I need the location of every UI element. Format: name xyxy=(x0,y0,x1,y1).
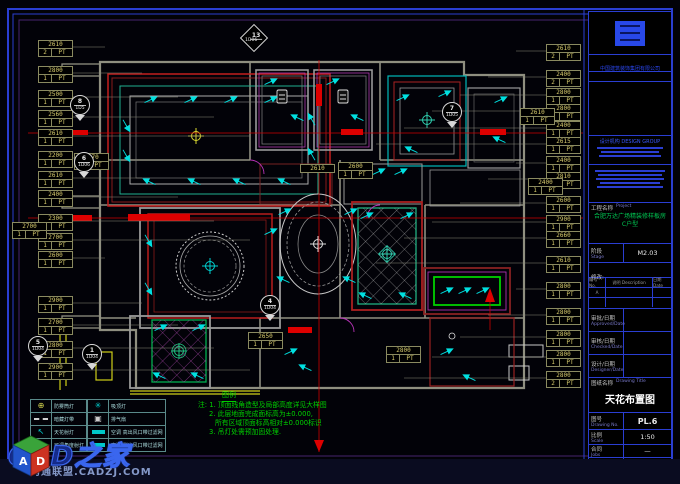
height-value: 2700 xyxy=(39,319,72,327)
height-value: 2610 xyxy=(547,45,580,53)
spotlight-icon xyxy=(298,362,312,372)
height-value: 2660 xyxy=(547,232,580,240)
finish-code: 1PT xyxy=(39,372,72,379)
ceiling-height-tag: 28001PT xyxy=(546,308,581,325)
ceiling-height-tag: 28001PT xyxy=(546,350,581,367)
finish-code: 1PT xyxy=(547,317,580,324)
ceiling-height-tag: 27001PT xyxy=(12,222,47,239)
height-value: 2400 xyxy=(547,157,580,165)
ceiling-height-tag: 26001PT xyxy=(38,251,73,268)
finish-code: 2PT xyxy=(547,53,580,60)
exhaust-icon: ▣ xyxy=(88,413,109,425)
height-value: 2200 xyxy=(39,152,72,160)
scale-value: 1:50 xyxy=(624,430,671,444)
title-block-spacer xyxy=(589,82,671,136)
height-value: 2900 xyxy=(39,297,72,305)
ceiling-height-tag: 26101PT xyxy=(38,129,73,146)
legend-label: 排气扇 xyxy=(109,416,128,423)
spotlight-icon xyxy=(404,144,418,154)
height-value: 2400 xyxy=(547,71,580,79)
finish-code: 1PT xyxy=(39,75,72,82)
elevation-marker: 61D06 xyxy=(74,152,94,178)
note-line: 所有区域顶面标高相对±0.000标识 xyxy=(198,419,327,428)
finish-code: 1PT xyxy=(529,187,562,194)
height-value: 2615 xyxy=(547,138,580,146)
note-line: 2. 此层地面完成面标高为±0.000, xyxy=(198,410,327,419)
finish-code: 1PT xyxy=(547,339,580,346)
ceiling-height-tag: 26101PT xyxy=(38,171,73,188)
ceiling-height-tag: 22001PT xyxy=(38,151,73,168)
elevation-marker: 81D5 xyxy=(70,95,90,121)
ceiling-height-tag: 27001PT xyxy=(38,318,73,335)
spotlight-icon xyxy=(325,76,339,86)
ceiling-height-tag: 26101PT xyxy=(520,108,555,125)
height-value: 2400 xyxy=(39,191,72,199)
elevation-marker: 131D06 xyxy=(244,28,264,48)
finish-code: 1PT xyxy=(39,242,72,249)
ceiling-height-tag: 24001PT xyxy=(546,156,581,173)
height-value: 2610 xyxy=(547,257,580,265)
finish-code: 1PT xyxy=(547,97,580,104)
spotlight-icon xyxy=(393,166,407,176)
ceiling-height-tag: 26102PT xyxy=(38,40,73,57)
spotlight-icon xyxy=(283,346,297,356)
spotlight-icon xyxy=(343,206,357,216)
ceiling-height-tag: 24002PT xyxy=(546,70,581,87)
finish-code: 2PT xyxy=(547,79,580,86)
height-value: 2610 xyxy=(521,109,554,117)
spotlight-icon xyxy=(437,88,451,98)
height-value: 2650 xyxy=(249,333,282,341)
height-value: 2600 xyxy=(547,197,580,205)
spotlight-icon xyxy=(439,285,453,295)
note-line: 3. 吊灯处需预加固处理. xyxy=(198,428,327,437)
finish-code: 1PT xyxy=(39,305,72,312)
ceiling-height-tag: 26001PT xyxy=(546,196,581,213)
designer-row: 设计/日期 Designer/Date xyxy=(589,355,671,378)
ceiling-height-tag: 29001PT xyxy=(38,363,73,380)
ceiling-height-tag: 26102PT xyxy=(546,44,581,61)
ceiling-height-tag: 29001PT xyxy=(38,296,73,313)
height-value: 2610 xyxy=(301,165,334,172)
height-value: 2800 xyxy=(547,331,580,339)
ceiling-height-tag: 24001PT xyxy=(38,190,73,207)
drawing-no: PL.6 xyxy=(624,413,671,429)
svg-text:A: A xyxy=(19,455,28,468)
spotlight-icon xyxy=(462,372,476,382)
finish-code: 2PT xyxy=(39,49,72,56)
downlight-icon: ⊕ xyxy=(31,400,52,412)
ceiling-height-tag: 28001PT xyxy=(546,88,581,105)
finish-code: 1PT xyxy=(547,205,580,212)
legend-label: 暗藏灯带 xyxy=(52,416,76,423)
design-org-box: 设计机构 DESIGN GROUP xyxy=(589,136,671,165)
ceiling-height-tag: 28001PT xyxy=(546,330,581,347)
finish-code: 1PT xyxy=(547,359,580,366)
ceiling-height-tag: 26501PT xyxy=(248,332,283,349)
legend-row: ▣排气扇 xyxy=(88,413,165,426)
cadzj-cube-logo: A D xyxy=(8,434,54,478)
finish-code: 1PT xyxy=(39,119,72,126)
finish-code: 1PT xyxy=(547,146,580,153)
spotlight-icon xyxy=(492,134,506,144)
finish-code: 1PT xyxy=(39,160,72,167)
height-value: 2800 xyxy=(547,283,580,291)
height-value: 2400 xyxy=(529,179,562,187)
drawing-no-row: 图号 Drawing No. PL.6 xyxy=(589,413,671,430)
drawing-title-box: 图纸名称 Drawing Title 天花布置图 xyxy=(589,378,671,413)
spotlight-icon xyxy=(493,94,507,104)
finish-code: 1PT xyxy=(547,265,580,272)
height-value: 2500 xyxy=(39,91,72,99)
ceiling-height-tag: 26101PT xyxy=(546,256,581,273)
rooms-middle-band xyxy=(260,164,520,206)
title-block: 中国建筑装饰集团有限公司 设计机构 DESIGN GROUP 工程名称 Proj… xyxy=(588,11,672,473)
address-lines xyxy=(589,165,671,203)
elevation-marker: 51D04 xyxy=(28,336,48,362)
height-value: 2560 xyxy=(39,111,72,119)
finish-code: 1PT xyxy=(547,224,580,231)
finish-code: 1PT xyxy=(39,99,72,106)
strip-icon xyxy=(31,413,52,425)
height-value: 2800 xyxy=(547,351,580,359)
revision-table: 编号 No. 说明 Description 日期 Date A xyxy=(589,278,671,309)
height-value: 2610 xyxy=(39,41,72,49)
room-bottom-right xyxy=(430,318,514,386)
pendant-icon: ✳ xyxy=(88,400,109,412)
finish-code: 1PT xyxy=(249,341,282,348)
height-value: 2700 xyxy=(13,223,46,231)
revision-row-id: A xyxy=(589,288,606,297)
elevation-marker: 41D04 xyxy=(260,295,280,321)
room-lattice-bottom-left xyxy=(130,316,210,388)
room-circular-ceiling xyxy=(140,208,280,328)
finish-code: 1PT xyxy=(39,199,72,206)
legend-row: ✳吸顶灯 xyxy=(88,400,165,413)
finish-code: 1PT xyxy=(547,240,580,247)
finish-code: 1PT xyxy=(387,355,420,362)
note-line: 注: 1. 顶面线角造型及局部高度详见大样图 xyxy=(198,401,327,409)
checked-row: 审核/日期 Checked/Date xyxy=(589,332,671,355)
approved-row: 审批/日期 Approved/Date xyxy=(589,309,671,332)
finish-code: 1PT xyxy=(547,165,580,172)
height-value: 2600 xyxy=(339,163,372,171)
spotlight-icon xyxy=(350,112,364,122)
job-value: — xyxy=(624,445,671,457)
height-value: 2800 xyxy=(387,347,420,355)
scale-row: 比例 Scale 1:50 xyxy=(589,430,671,445)
project-name-2: C户型 xyxy=(589,221,671,229)
ceiling-height-tag: 25601PT xyxy=(38,110,73,127)
stage-row: 阶段 Stage M2.03 xyxy=(589,244,671,263)
height-value: 2800 xyxy=(39,67,72,75)
project-name: 合肥万达广场精装修样板房 xyxy=(589,213,671,221)
height-value: 2800 xyxy=(547,372,580,380)
finish-code: 2PT xyxy=(547,380,580,387)
finish-code: 1PT xyxy=(39,260,72,267)
ceiling-height-tag: 26001PT xyxy=(338,162,373,179)
ceiling-height-tag: 26151PT xyxy=(546,137,581,154)
ceiling-height-tag: 28001PT xyxy=(38,66,73,83)
ceiling-height-tag: 26601PT xyxy=(546,231,581,248)
finish-code: 1PT xyxy=(39,180,72,187)
spotlight-icon xyxy=(395,92,409,102)
ceiling-height-tag: 28002PT xyxy=(546,371,581,388)
legend-row: ⊕防雾筒灯 xyxy=(31,400,86,413)
ceiling-height-tag: 24001PT xyxy=(528,178,563,195)
project-name-box: 工程名称 Project 合肥万达广场精装修样板房 C户型 xyxy=(589,203,671,244)
height-value: 2800 xyxy=(547,89,580,97)
ceiling-height-tag: 2610 xyxy=(300,164,335,173)
height-value: 2900 xyxy=(547,216,580,224)
legend-row: 暗藏灯带 xyxy=(31,413,86,426)
cad-drawing-sheet: 26102PT28001PT25001PT25601PT26101PT22001… xyxy=(0,0,680,484)
height-value: 2800 xyxy=(547,309,580,317)
finish-code: 1PT xyxy=(521,117,554,124)
company-logo xyxy=(589,12,671,55)
design-org-name: 设计机构 DESIGN GROUP xyxy=(589,138,671,145)
finish-code: 1PT xyxy=(339,171,372,178)
cadzj-watermark: A D CAD之家 xyxy=(8,434,130,473)
finish-code: 1PT xyxy=(39,138,72,145)
spotlight-icon xyxy=(475,285,489,295)
project-label: 工程名称 xyxy=(591,204,613,212)
section-lines xyxy=(28,60,583,452)
legend-label: 防雾筒灯 xyxy=(52,403,76,410)
elevation-marker: 11D04 xyxy=(82,344,102,370)
ceiling-height-tag: 29001PT xyxy=(546,215,581,232)
drawing-notes: 注: 1. 顶面线角造型及局部高度详见大样图 2. 此层地面完成面标高为±0.0… xyxy=(198,401,327,437)
height-value: 2610 xyxy=(39,172,72,180)
height-value: 2610 xyxy=(39,130,72,138)
finish-code: 1PT xyxy=(13,231,46,238)
height-value: 2600 xyxy=(39,252,72,260)
legend-label: 吸顶灯 xyxy=(109,403,128,410)
drawing-title: 天花布置图 xyxy=(589,391,671,406)
spotlight-icon xyxy=(371,166,385,176)
stage-value: M2.03 xyxy=(624,244,671,262)
elevation-marker: 71D05 xyxy=(442,102,462,128)
logo-icon xyxy=(615,21,645,46)
room-living-ceiling xyxy=(108,74,330,206)
finish-code: 1PT xyxy=(547,291,580,298)
ceiling-height-tag: 28001PT xyxy=(386,346,421,363)
svg-text:D: D xyxy=(36,455,45,468)
finish-code: 1PT xyxy=(547,130,580,137)
height-value: 2900 xyxy=(39,364,72,372)
spotlight-icon xyxy=(439,346,453,356)
ceiling-height-tag: 25001PT xyxy=(38,90,73,107)
finish-code: 1PT xyxy=(39,327,72,334)
job-row: 合同 Jobs — xyxy=(589,445,671,458)
spotlight-icon xyxy=(457,285,471,295)
ceiling-height-tag: 28001PT xyxy=(546,282,581,299)
